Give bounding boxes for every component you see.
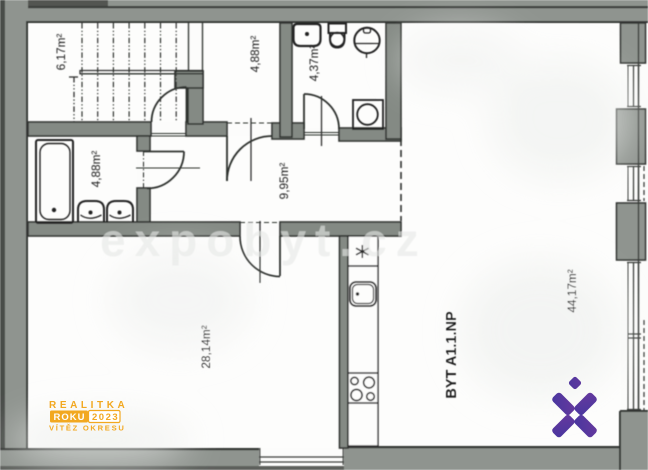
svg-text:4,88m²: 4,88m²: [248, 36, 262, 73]
svg-text:9,95m²: 9,95m²: [277, 163, 291, 200]
svg-text:BYT A1.1.NP: BYT A1.1.NP: [444, 311, 460, 399]
svg-text:VÍTĚZ OKRESU: VÍTĚZ OKRESU: [49, 424, 126, 433]
svg-text:44,17m²: 44,17m²: [565, 269, 579, 312]
svg-text:ROKU: ROKU: [54, 412, 86, 423]
svg-text:28,14m²: 28,14m²: [199, 325, 213, 368]
svg-text:expobyt.cz: expobyt.cz: [100, 214, 428, 266]
svg-text:4,37m²: 4,37m²: [307, 45, 321, 82]
svg-text:2023: 2023: [92, 412, 119, 423]
svg-text:6,17m²: 6,17m²: [54, 34, 68, 71]
svg-text:REALITKA: REALITKA: [49, 400, 128, 411]
svg-text:4,88m²: 4,88m²: [89, 151, 103, 188]
